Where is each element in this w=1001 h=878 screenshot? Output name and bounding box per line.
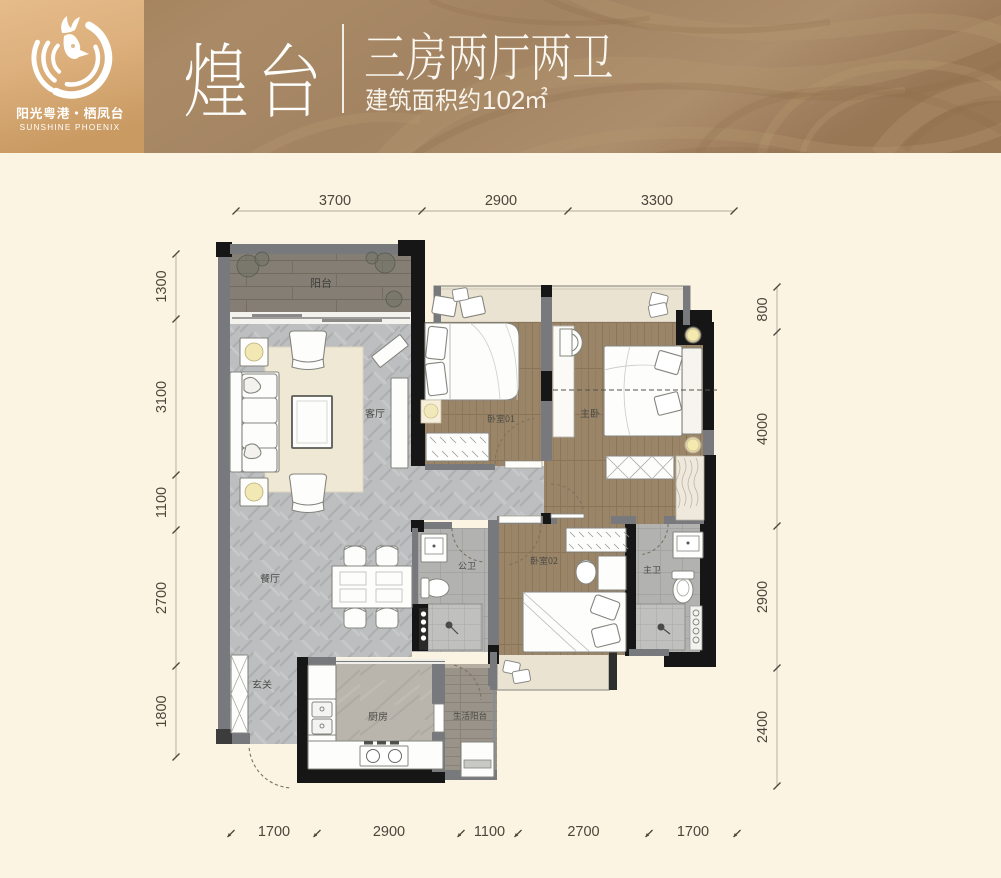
svg-text:1700: 1700 [677, 824, 709, 840]
svg-text:2700: 2700 [567, 824, 599, 840]
svg-text:3300: 3300 [641, 193, 673, 209]
svg-text:SUNSHINE PHOENIX: SUNSHINE PHOENIX [20, 123, 121, 132]
svg-text:1800: 1800 [154, 695, 170, 727]
svg-text:800: 800 [755, 297, 771, 321]
svg-text:2700: 2700 [154, 582, 170, 614]
svg-text:2400: 2400 [755, 711, 771, 743]
svg-text:2900: 2900 [373, 824, 405, 840]
svg-text:1100: 1100 [154, 487, 170, 518]
svg-text:3700: 3700 [319, 193, 351, 209]
svg-text:2900: 2900 [755, 581, 771, 613]
svg-text:3100: 3100 [154, 381, 170, 413]
svg-text:1700: 1700 [258, 824, 290, 840]
svg-text:102: 102 [482, 85, 525, 115]
svg-text:2900: 2900 [485, 193, 517, 209]
svg-text:1300: 1300 [154, 270, 170, 302]
svg-text:4000: 4000 [755, 413, 771, 445]
svg-text:1100: 1100 [474, 824, 505, 840]
